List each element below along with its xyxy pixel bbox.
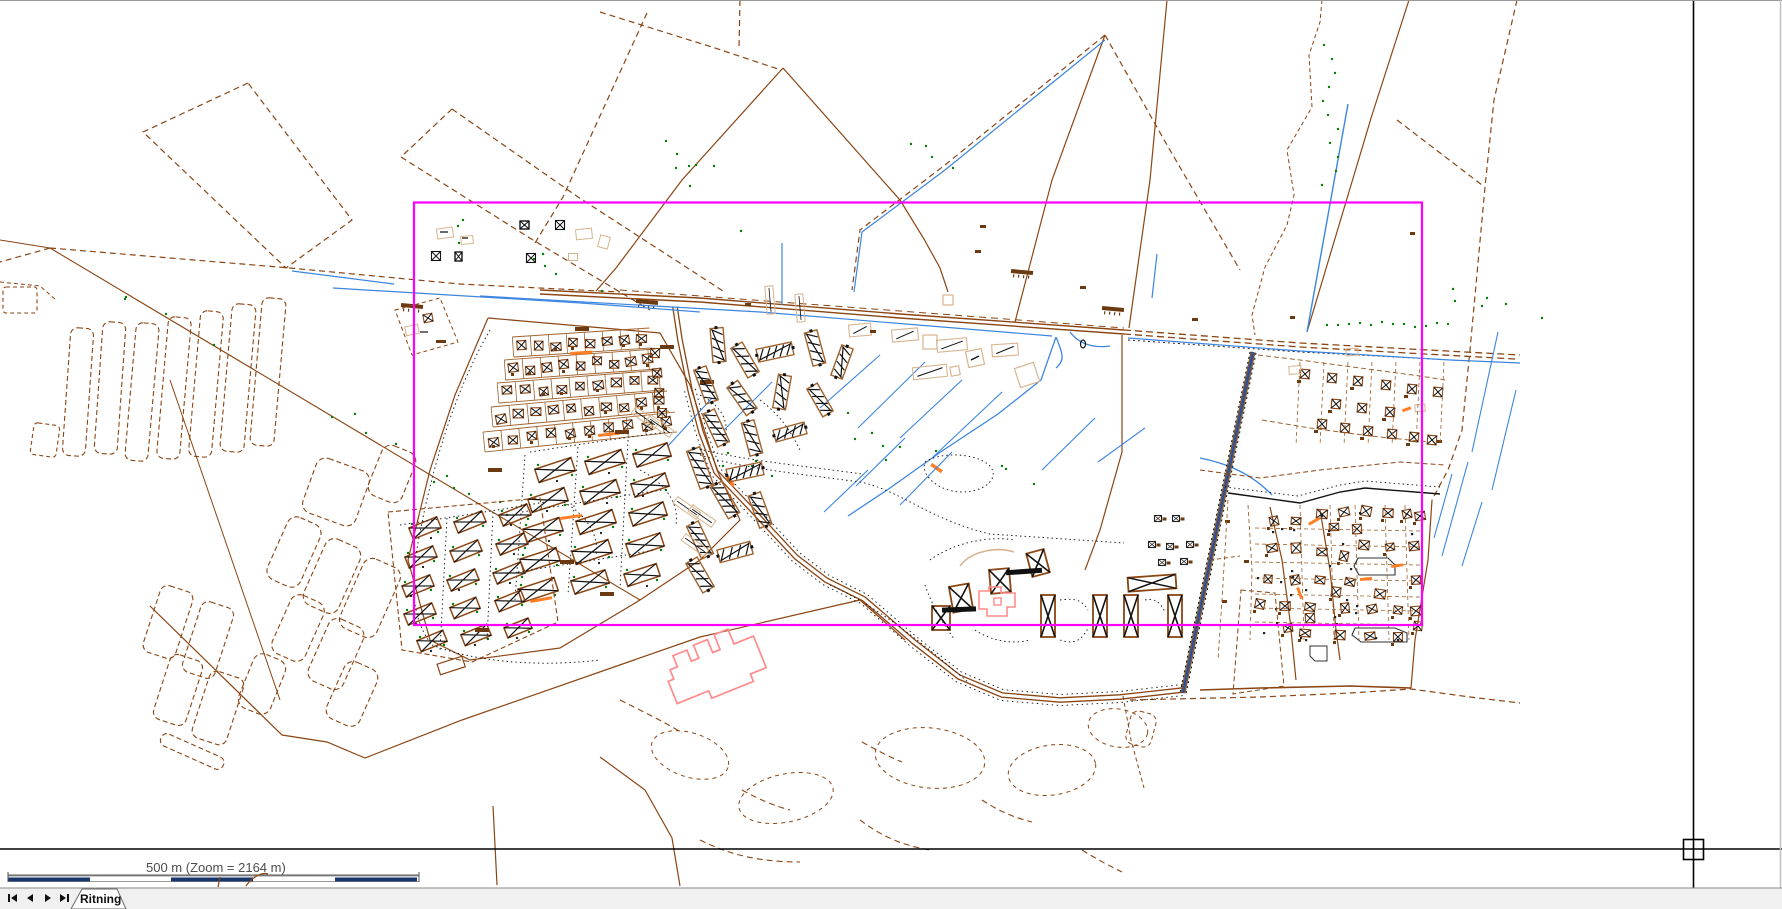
svg-text:500 m (Zoom = 2164 m): 500 m (Zoom = 2164 m) [146, 860, 286, 875]
svg-text:Ritning: Ritning [80, 892, 121, 906]
